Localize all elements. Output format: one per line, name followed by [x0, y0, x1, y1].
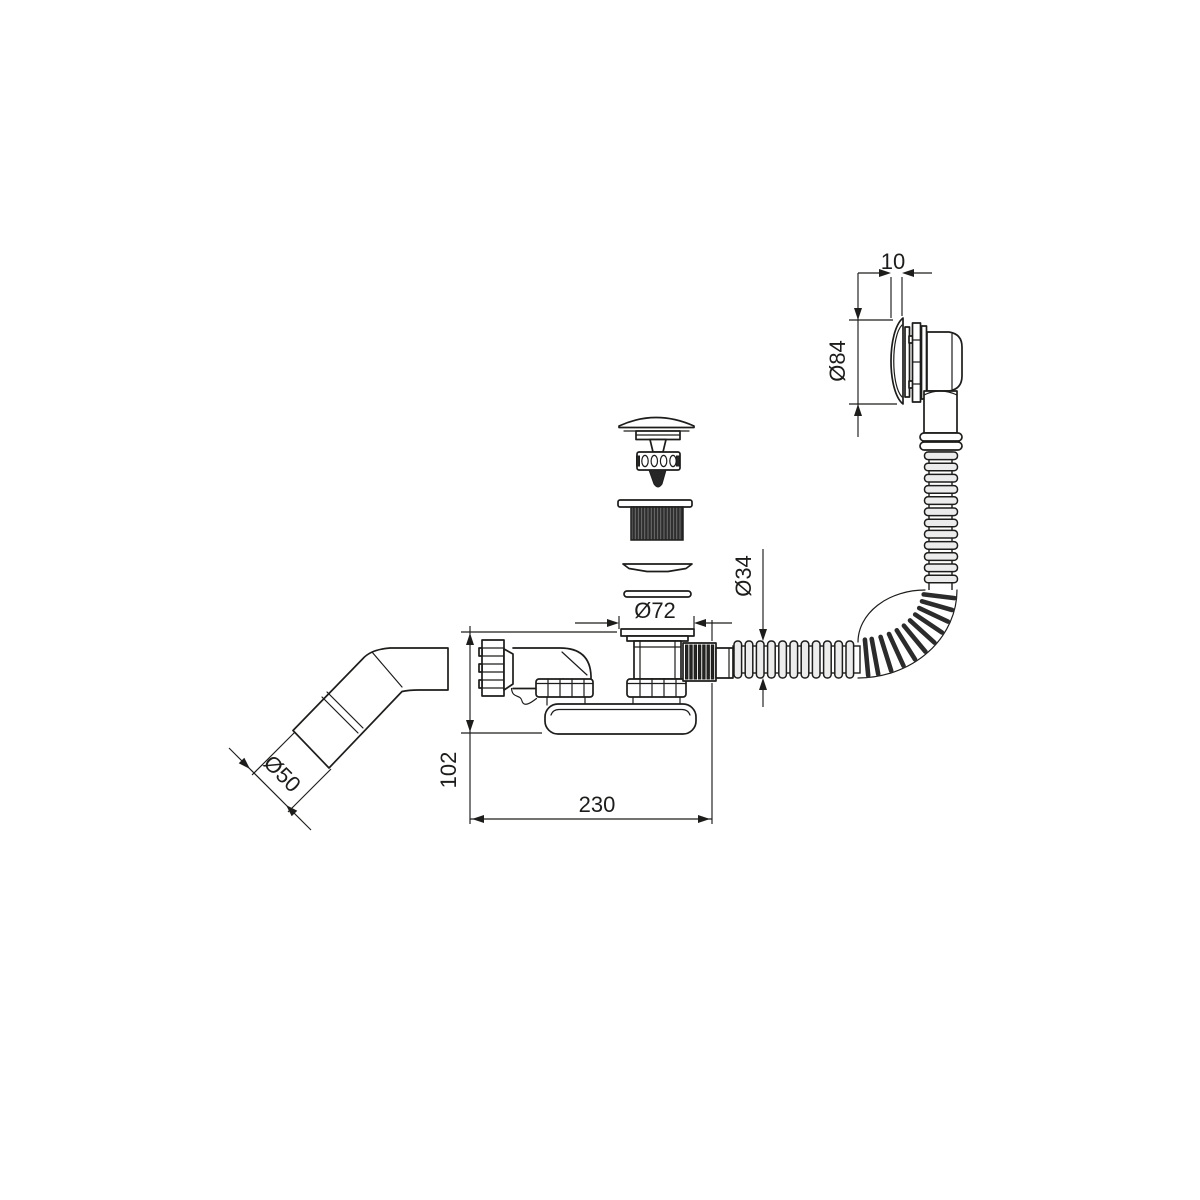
dim-flange-diameter: Ø72 [575, 598, 732, 629]
basket-tab-right [677, 456, 680, 466]
drain-siphon-technical-drawing: 10 Ø84 Ø34 Ø72 Ø50 [0, 0, 1200, 1200]
dimension-label-outlet-diameter: Ø50 [259, 750, 306, 797]
dimension-label-height: 102 [436, 752, 461, 789]
overflow-dome-cap [891, 318, 903, 404]
union-nut-right [627, 679, 686, 697]
rosette-plate-3 [922, 326, 927, 399]
union-nut-left [536, 679, 593, 697]
siphon-assembly [479, 629, 733, 734]
dim-hose-diameter: Ø34 [731, 549, 767, 707]
flat-gasket [624, 591, 691, 597]
basket-tab-left [637, 456, 640, 466]
plug-stem [650, 440, 666, 453]
bevel-washer [623, 564, 692, 572]
plug-spring-basket [637, 452, 680, 470]
hose-knurled-nut [683, 643, 716, 681]
plug-dome-cap [619, 418, 694, 428]
hose-horizontal-ribs [734, 641, 854, 678]
hose-ring-1 [920, 433, 962, 441]
overflow-elbow-body [927, 332, 962, 391]
dimension-label-cap-diameter: Ø84 [825, 340, 850, 382]
hose-outlet-sleeve [716, 648, 733, 678]
dim-cap-offset: 10 [858, 249, 932, 318]
elbow-drip-lip [512, 689, 537, 705]
outlet-pipe-body [293, 648, 448, 768]
drain-seat-flange [618, 500, 692, 507]
plug-cone-tip [649, 470, 666, 487]
hose-bend [858, 590, 957, 678]
dim-cap-diameter: Ø84 [825, 273, 897, 437]
outlet-pipe-angled [293, 648, 448, 768]
technical-drawing-page: 10 Ø84 Ø34 Ø72 Ø50 [0, 0, 1200, 1200]
overflow-down-tube [924, 391, 957, 433]
inlet-castle-nut [479, 640, 513, 696]
drain-seat-threaded-body [631, 507, 683, 540]
hose-ring-2 [920, 442, 962, 450]
dimension-label-hose-diameter: Ø34 [731, 555, 756, 597]
siphon-trap-body [545, 697, 696, 734]
corrugated-overflow-hose [733, 452, 958, 678]
overflow-cap-assembly [891, 318, 962, 450]
dimension-label-cap-offset: 10 [881, 249, 905, 274]
dimension-label-flange-diameter: Ø72 [634, 598, 676, 623]
drain-seat-exploded [618, 500, 692, 540]
dimension-label-length: 230 [579, 792, 616, 817]
popup-plug-exploded [619, 418, 694, 488]
